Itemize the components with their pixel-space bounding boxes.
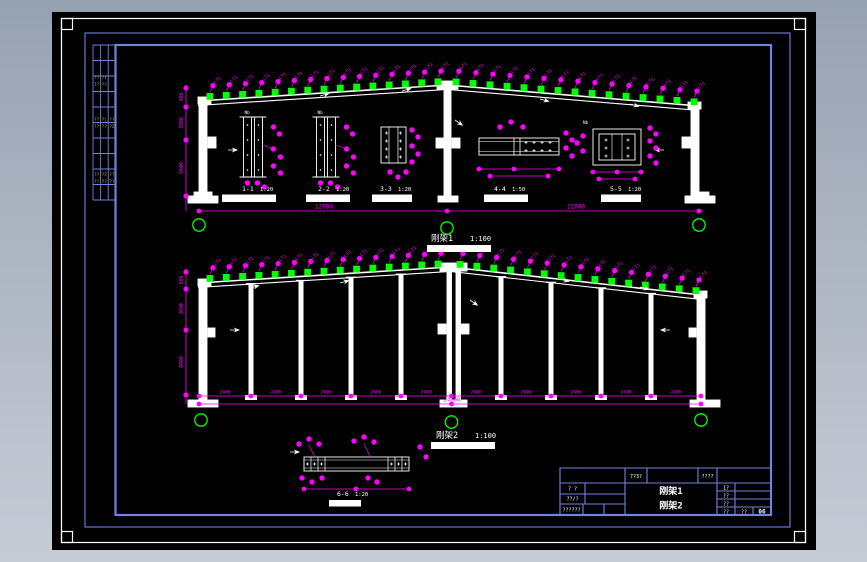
purlin-marker: [207, 93, 214, 100]
purlin-marker: [386, 82, 393, 89]
dim-dot: [371, 439, 376, 444]
interior-column: [649, 293, 654, 395]
dim-dot: [699, 394, 704, 399]
purlin-marker: [674, 97, 681, 104]
bolt-mark: [331, 169, 333, 171]
dim-dot: [512, 167, 517, 172]
purlin-marker: [676, 285, 683, 292]
dim-dot: [423, 454, 428, 459]
dim-dot: [278, 170, 283, 175]
caption-underline: [431, 442, 495, 449]
weld-label: Nb: [245, 110, 251, 116]
dim-dot: [197, 394, 202, 399]
purlin-marker: [435, 261, 442, 268]
signature-text: ?7: [102, 75, 108, 81]
purlin-marker: [693, 287, 700, 294]
title-block-cell: ??: [723, 502, 729, 508]
caption-underline: [601, 195, 641, 203]
purlin-marker: [418, 79, 425, 86]
bolt-mark: [247, 154, 249, 156]
dim-dot: [349, 394, 354, 399]
purlin-marker: [524, 268, 531, 275]
dim-dot: [319, 475, 324, 480]
purlin-marker: [487, 81, 494, 88]
dim-dot: [415, 151, 420, 156]
column: [199, 282, 207, 400]
signature-text: ??: [94, 124, 100, 130]
column: [697, 294, 705, 400]
dimension-text: 2400: [620, 390, 631, 396]
signature-text: ??: [94, 172, 100, 178]
ridge-column: [447, 268, 452, 400]
bolt-mark: [258, 154, 260, 156]
purlin-marker: [288, 88, 295, 95]
purlin-marker: [255, 90, 262, 97]
purlin-marker: [555, 87, 562, 94]
purlin-marker: [606, 91, 613, 98]
purlin-marker: [321, 86, 328, 93]
purlin-marker: [418, 262, 425, 269]
dim-dot: [316, 441, 321, 446]
dimension-text: 24000: [444, 398, 461, 404]
dim-dot: [351, 170, 356, 175]
bolt-mark: [258, 139, 260, 141]
purlin-marker: [608, 278, 615, 285]
dim-dot: [499, 394, 504, 399]
ridge-column: [456, 268, 461, 400]
signature-text: ??: [94, 75, 100, 81]
dimension-text: 5600: [179, 162, 185, 174]
bolt-mark: [320, 169, 322, 171]
dim-dot: [403, 169, 408, 174]
dim-dot: [309, 479, 314, 484]
column: [199, 100, 207, 196]
dim-dot: [365, 475, 370, 480]
bolt-mark: [247, 139, 249, 141]
dimension-text: 2400: [320, 390, 331, 396]
signature-text: ?|: [102, 117, 107, 123]
dimension-text: 3300: [179, 117, 185, 129]
dim-dot: [563, 145, 568, 150]
footing: [438, 196, 458, 202]
dim-dot: [344, 124, 349, 129]
purlin-marker: [353, 266, 360, 273]
bolt-mark: [320, 139, 322, 141]
purlin-marker: [369, 83, 376, 90]
title-block-cell: ??: [723, 494, 729, 500]
dim-dot: [647, 125, 652, 130]
purlin-marker: [337, 85, 344, 92]
dim-dot: [639, 170, 644, 175]
crane-corbel: [208, 328, 215, 337]
frame1-scale: 1:100: [470, 235, 491, 243]
dim-dot: [407, 487, 412, 492]
title-block-drawing-name-2: 刚架2: [659, 500, 682, 512]
dim-dot: [647, 153, 652, 158]
dim-dot: [417, 444, 422, 449]
footing: [690, 400, 720, 407]
dim-dot: [296, 441, 301, 446]
dimension-text: 900: [179, 276, 185, 285]
purlin-marker: [473, 263, 480, 270]
dimension-text: 2400: [670, 390, 681, 396]
footing: [188, 400, 218, 407]
dim-dot: [183, 85, 188, 90]
signature-text: 7?: [102, 179, 108, 185]
dim-dot: [183, 137, 188, 142]
dim-dot: [647, 138, 652, 143]
caption-underline: [329, 500, 361, 507]
dim-dot: [306, 436, 311, 441]
title-block-cell: ??: [723, 510, 729, 516]
dim-dot: [580, 133, 585, 138]
signature-text: ??: [109, 172, 115, 178]
dim-dot: [351, 154, 356, 159]
signature-text: ?Z: [109, 124, 115, 130]
dim-dot: [387, 169, 392, 174]
dim-dot: [278, 154, 283, 159]
interior-column: [499, 277, 504, 395]
purlin-marker: [207, 275, 214, 282]
dim-dot: [183, 104, 188, 109]
title-block-cell: ??: [741, 510, 747, 516]
dimension-text: 2400: [471, 390, 482, 396]
dim-dot: [277, 131, 282, 136]
purlin-marker: [255, 272, 262, 279]
bolt-mark: [247, 169, 249, 171]
detail-1-1-caption: 1-1: [242, 185, 254, 193]
dim-dot: [697, 209, 702, 214]
dimension-text: 2400: [219, 390, 230, 396]
frame2-scale: 1:100: [475, 432, 496, 440]
dim-dot: [649, 394, 654, 399]
frame2-caption: 刚架2: [436, 431, 458, 441]
title-block-cell: ????: [701, 474, 713, 480]
dim-dot: [569, 137, 574, 142]
purlin-marker: [625, 280, 632, 287]
crane-corbel: [682, 137, 691, 148]
signature-text: ??: [94, 117, 100, 123]
cad-viewer-background: { "meta": { "black": "#000000", "border_…: [0, 0, 867, 562]
purlin-marker: [369, 265, 376, 272]
dim-dot: [344, 163, 349, 168]
purlin-marker: [223, 92, 230, 99]
interior-column: [249, 284, 254, 395]
dim-dot: [183, 286, 188, 291]
purlin-marker: [490, 265, 497, 272]
dim-dot: [302, 487, 307, 492]
caption-underline: [427, 245, 491, 252]
dim-dot: [197, 209, 202, 214]
dim-dot: [183, 193, 188, 198]
dim-dot: [580, 148, 585, 153]
purlin-marker: [337, 267, 344, 274]
dimension-text: 12000: [567, 204, 585, 211]
purlin-marker: [239, 91, 246, 98]
detail-4-4-caption: 4-4: [494, 185, 506, 193]
dimension-text: 12000: [315, 204, 333, 211]
detail-3-3-scale: 1:20: [398, 187, 411, 193]
purlin-marker: [239, 273, 246, 280]
caption-underline: [306, 195, 350, 203]
dim-dot: [299, 394, 304, 399]
dim-dot: [546, 174, 551, 179]
bolt-mark: [320, 154, 322, 156]
purlin-marker: [558, 272, 565, 279]
dim-dot: [633, 177, 638, 182]
title-block-cell: ? ?: [568, 487, 577, 493]
weld-label: Nb: [318, 110, 324, 116]
dim-dot: [599, 394, 604, 399]
purlin-marker: [304, 269, 311, 276]
bolt-mark: [247, 124, 249, 126]
purlin-marker: [321, 268, 328, 275]
dimension-text: 900: [179, 93, 185, 102]
title-block-sheet-number: 06: [758, 509, 766, 516]
detail-4-4-scale: 1:50: [512, 187, 525, 193]
dim-dot: [591, 170, 596, 175]
dim-dot: [488, 174, 493, 179]
purlin-marker: [288, 270, 295, 277]
crane-corbel: [689, 328, 696, 337]
purlin-marker: [572, 88, 579, 95]
bolt-mark: [331, 139, 333, 141]
dim-dot: [197, 402, 202, 407]
signature-text: ?7: [102, 172, 108, 178]
title-block-cell: 1?: [723, 486, 729, 492]
dimension-text: 2400: [370, 390, 381, 396]
purlin-marker: [691, 98, 698, 105]
dim-dot: [409, 159, 414, 164]
purlin-marker: [272, 271, 279, 278]
purlin-marker: [575, 274, 582, 281]
bolt-mark: [258, 169, 260, 171]
dim-dot: [409, 143, 414, 148]
signature-text: ??: [109, 179, 115, 185]
dim-dot: [249, 394, 254, 399]
purlin-marker: [541, 270, 548, 277]
title-block-cell: 7?3?: [630, 474, 642, 480]
purlin-marker: [457, 261, 464, 268]
dim-dot: [699, 402, 704, 407]
base-plate: [194, 192, 212, 196]
caption-underline: [372, 195, 412, 203]
interior-column: [299, 280, 304, 395]
interior-column: [349, 277, 354, 395]
footing: [685, 196, 715, 203]
dim-dot: [415, 134, 420, 139]
purlin-marker: [470, 80, 477, 87]
bolt-mark: [258, 124, 260, 126]
purlin-marker: [435, 78, 442, 85]
signature-text: ??: [102, 124, 108, 130]
crane-corbel: [452, 138, 460, 148]
crane-corbel: [461, 324, 469, 334]
dim-dot: [653, 145, 658, 150]
dim-dot: [350, 131, 355, 136]
crane-corbel: [208, 137, 216, 148]
footing: [188, 196, 218, 203]
dim-dot: [520, 124, 525, 129]
purlin-marker: [659, 283, 666, 290]
dim-dot: [574, 140, 579, 145]
dim-dot: [354, 487, 359, 492]
dim-dot: [569, 153, 574, 158]
dim-dot: [399, 394, 404, 399]
purlin-marker: [623, 93, 630, 100]
purlin-marker: [640, 94, 647, 101]
detail-5-5-scale: 1:20: [628, 187, 641, 193]
detail-3-3-caption: 3-3: [380, 185, 392, 193]
title-block-cell: ??????: [562, 508, 580, 514]
dim-dot: [653, 160, 658, 165]
column: [691, 106, 699, 196]
dimension-text: 8400: [179, 356, 185, 368]
detail-6-6-scale: 1:20: [355, 492, 368, 498]
signature-text: ??: [109, 117, 115, 123]
purlin-marker: [507, 267, 514, 274]
purlin-marker: [304, 87, 311, 94]
detail-6-6-caption: 6-6: [337, 490, 349, 498]
dimension-text: 3600: [179, 303, 185, 315]
signature-text: ??: [94, 179, 100, 185]
ridge-column: [444, 89, 451, 196]
purlin-marker: [591, 276, 598, 283]
purlin-marker: [657, 96, 664, 103]
purlin-marker: [402, 80, 409, 87]
purlin-marker: [386, 264, 393, 271]
signature-text: ??: [102, 82, 108, 88]
dimension-text: 2400: [270, 390, 281, 396]
title-block-drawing-name-1: 刚架1: [659, 485, 682, 497]
dim-dot: [508, 119, 513, 124]
purlin-marker: [223, 274, 230, 281]
caption-underline: [484, 195, 528, 203]
title-block-cell: ??/?: [566, 497, 578, 503]
dim-dot: [361, 434, 366, 439]
purlin-marker: [402, 263, 409, 270]
dim-dot: [557, 167, 562, 172]
purlin-marker: [272, 89, 279, 96]
dim-dot: [497, 124, 502, 129]
purlin-marker: [353, 84, 360, 91]
weld-label: Nb: [583, 120, 589, 126]
dim-dot: [271, 124, 276, 129]
dim-dot: [477, 167, 482, 172]
dimension-text: 2400: [570, 390, 581, 396]
bolt-mark: [331, 154, 333, 156]
signature-text: 7?: [94, 82, 100, 88]
base-plate: [691, 192, 709, 196]
detail-5-5-caption: 5-5: [610, 185, 622, 193]
detail-2-2-scale: 1:20: [336, 187, 349, 193]
dim-dot: [409, 127, 414, 132]
dim-dot: [445, 209, 450, 214]
dim-dot: [183, 327, 188, 332]
dim-dot: [183, 392, 188, 397]
purlin-marker: [521, 84, 528, 91]
dim-dot: [615, 170, 620, 175]
dim-dot: [374, 479, 379, 484]
dim-dot: [271, 163, 276, 168]
detail-2-2-caption: 2-2: [318, 185, 330, 193]
dim-dot: [549, 394, 554, 399]
crane-corbel: [436, 138, 444, 148]
dim-dot: [563, 130, 568, 135]
detail-1-1-scale: 1:20: [260, 187, 273, 193]
dim-dot: [183, 269, 188, 274]
caption-underline: [222, 195, 276, 203]
interior-column: [549, 282, 554, 395]
bolt-mark: [320, 124, 322, 126]
purlin-marker: [538, 86, 545, 93]
dim-dot: [255, 180, 260, 185]
interior-column: [399, 274, 404, 395]
dimension-text: 2400: [520, 390, 531, 396]
purlin-marker: [589, 90, 596, 97]
purlin-marker: [504, 83, 511, 90]
dim-dot: [395, 174, 400, 179]
purlin-marker: [453, 79, 460, 86]
frame1-caption: 刚架1: [431, 234, 453, 244]
cad-sheet: ???77??????|???????Z???7????7??? LT1LT1L…: [0, 0, 867, 562]
dim-dot: [299, 475, 304, 480]
crane-corbel: [438, 324, 446, 334]
dimension-text: 2400: [421, 390, 432, 396]
interior-column: [599, 288, 604, 395]
dim-dot: [653, 131, 658, 136]
bolt-mark: [331, 124, 333, 126]
dim-dot: [597, 177, 602, 182]
dim-dot: [351, 438, 356, 443]
